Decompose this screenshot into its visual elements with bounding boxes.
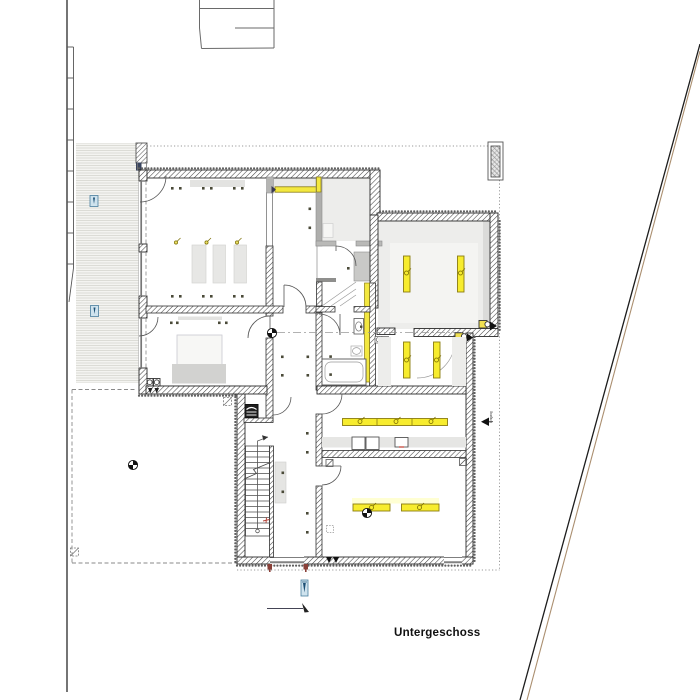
svg-text:Eingang: Eingang: [489, 411, 493, 423]
svg-text:Untergeschoss: Untergeschoss: [394, 626, 480, 639]
